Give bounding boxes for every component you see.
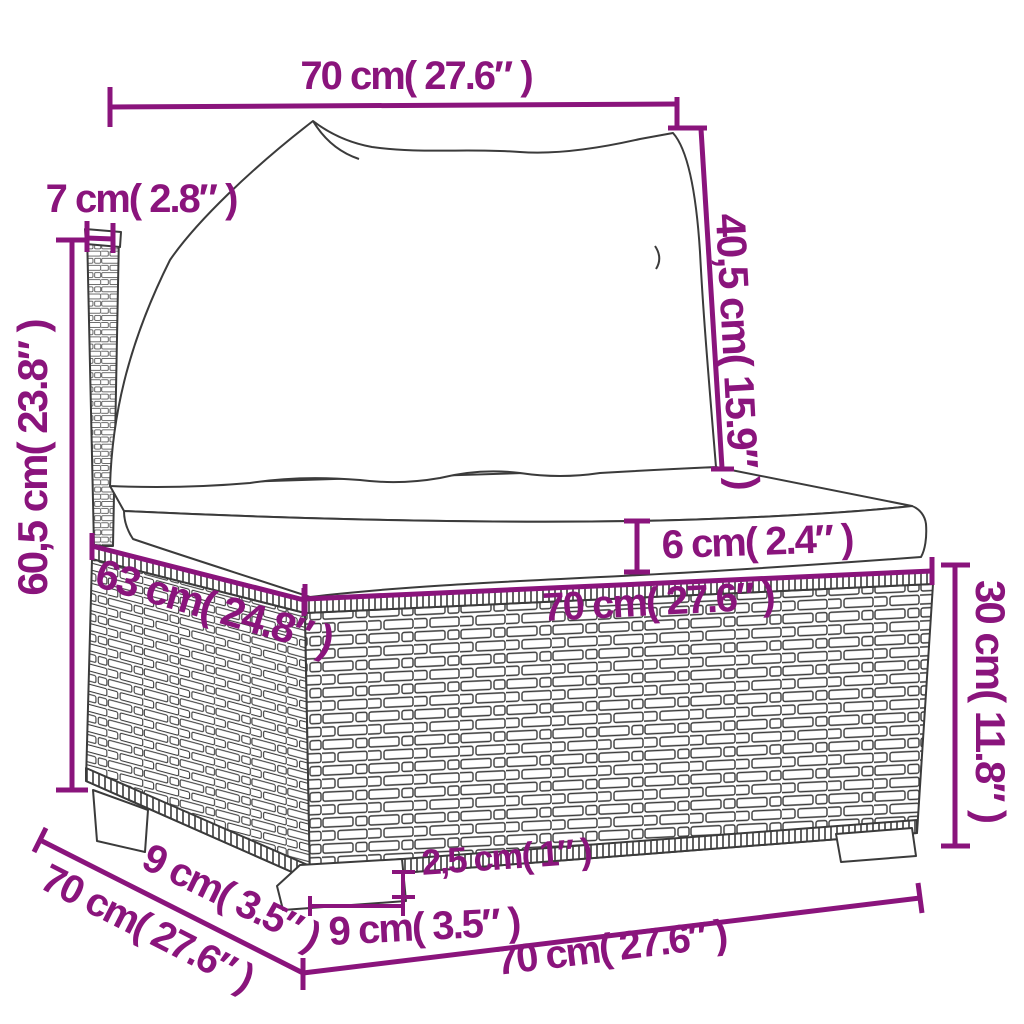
- back-cushion: [110, 121, 716, 487]
- dimension-diagram: 70 cm( 27.6″ ) 7 cm( 2.8″ ) 40,5 cm( 15.…: [0, 0, 1024, 1024]
- dim-foot-width-label: 9 cm( 3.5″ ): [328, 902, 521, 952]
- back-post: [85, 229, 121, 546]
- dim-back-cushion-width-label: 70 cm( 27.6″ ): [300, 56, 531, 96]
- dim-seat-cushion-thickness-label: 6 cm( 2.4″ ): [661, 519, 853, 566]
- dim-overall-height-label: 60,5 cm( 23.8″ ): [12, 320, 54, 595]
- foot-front-right: [836, 828, 916, 862]
- dim-overall-height-line: [56, 240, 88, 790]
- dim-base-height-label: 30 cm( 11.8″ ): [969, 580, 1011, 822]
- dim-back-post-width-label: 7 cm( 2.8″ ): [46, 179, 237, 219]
- dim-base-height-line: [941, 565, 970, 846]
